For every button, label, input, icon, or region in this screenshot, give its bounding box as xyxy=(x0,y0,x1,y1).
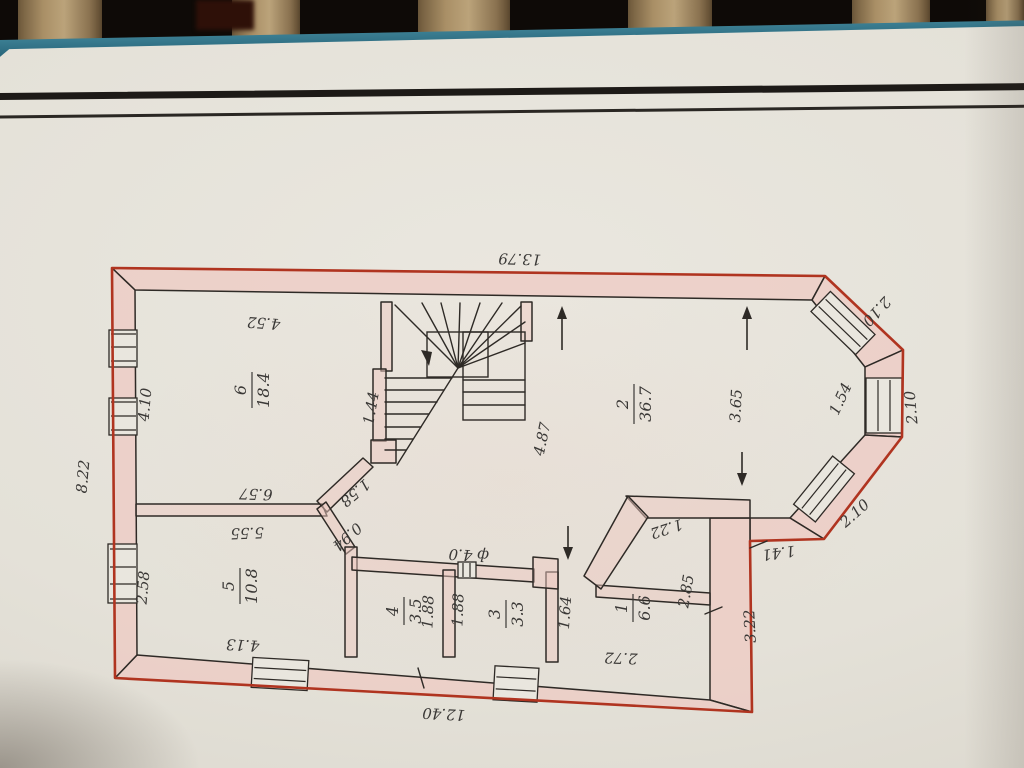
room2-number: 2 xyxy=(613,399,632,410)
dim-room5-left: 2.58 xyxy=(133,570,154,606)
dim-overall-left: 8.22 xyxy=(73,459,94,494)
interior-walls xyxy=(136,302,750,662)
dim-room1-diag: 1.22 xyxy=(648,515,685,542)
wall-stair-west-upper xyxy=(381,302,392,371)
dim-room5-bottom: 4.13 xyxy=(226,635,261,655)
edge-shadow xyxy=(964,0,1024,768)
room5-area: 10.8 xyxy=(242,568,261,604)
room-labels: 6 18.4 2 36.7 5 10.8 4 3.5 3 xyxy=(219,372,655,628)
room4-number: 4 xyxy=(383,606,402,617)
entrance-door-bottom xyxy=(493,666,539,702)
dim-room6-left: 4.10 xyxy=(135,387,156,423)
stair-stringer xyxy=(397,368,458,465)
dim-room2-width: 3.65 xyxy=(726,389,746,423)
dim-bay-right-outer: 2.10 xyxy=(901,390,922,426)
dim-room6-top: 4.52 xyxy=(246,313,282,333)
room-label-2: 2 36.7 xyxy=(613,384,655,424)
room2-area: 36.7 xyxy=(636,385,655,421)
room-label-6: 6 18.4 xyxy=(231,372,273,408)
room2-width-arrow-down xyxy=(737,452,747,486)
room3-number: 3 xyxy=(485,609,504,619)
entry-arrow-down xyxy=(563,526,573,560)
dim-overall-bottom: 12.40 xyxy=(421,704,465,724)
wall-lobby-stub xyxy=(533,557,558,589)
hall-length-arrow-up xyxy=(557,306,567,350)
dim-wall56-lower: 5.55 xyxy=(230,523,264,542)
staircase xyxy=(385,303,525,465)
dim-right-lower: 3.22 xyxy=(740,609,760,643)
wall-room1-diagonal xyxy=(584,496,648,589)
wall-stair-east xyxy=(521,302,532,341)
room5-number: 5 xyxy=(219,581,238,591)
room4-area: 3.5 xyxy=(406,598,425,623)
room1-number: 1 xyxy=(612,603,631,613)
dim-bay-right-inner: 1.54 xyxy=(825,380,855,418)
room-label-4: 4 3.5 xyxy=(383,597,425,625)
wall-room6-room5 xyxy=(136,504,327,516)
room-label-3: 3 3.3 xyxy=(485,600,527,628)
room6-area: 18.4 xyxy=(254,372,273,408)
stair-right-flight xyxy=(463,332,525,420)
room2-width-arrow-up xyxy=(742,306,752,350)
dim-overall-top: 13.79 xyxy=(498,249,542,269)
dim-room1-bottom: 2.72 xyxy=(604,648,639,667)
dim-hall-length: 4.87 xyxy=(530,420,555,458)
dim-flue: ф 4.0 xyxy=(448,545,490,565)
dim-room4-right: 1.88 xyxy=(448,593,467,627)
stair-winder-fan xyxy=(395,303,525,368)
room6-number: 6 xyxy=(231,385,250,395)
room3-area: 3.3 xyxy=(508,601,527,626)
stair-left-flight xyxy=(385,368,458,465)
dim-wall56-upper: 6.57 xyxy=(238,484,272,503)
room-label-5: 5 10.8 xyxy=(219,568,261,604)
room1-area: 6.6 xyxy=(635,595,654,620)
dim-right-notch: 1.41 xyxy=(761,542,797,564)
wall-stair-foot xyxy=(371,440,396,463)
window-bay-right xyxy=(866,378,902,433)
dim-lobby-width: 1.64 xyxy=(555,595,575,630)
photo-of-floor-plan: 13.79 4.52 4.10 8.22 6.57 5.55 1.58 1.44… xyxy=(0,0,1024,768)
corner-shadow xyxy=(0,648,220,768)
